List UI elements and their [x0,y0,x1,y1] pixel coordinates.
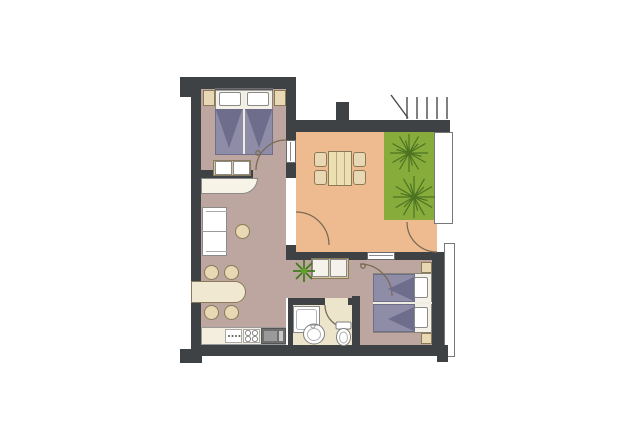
wall-bottom-right-stub [437,345,448,362]
pillow [247,92,269,106]
sofa-line [206,211,227,212]
bench-cushion [215,161,232,175]
oval-dining-table [191,281,246,303]
mattress-divider [243,89,245,154]
sofa-cushion-divider [202,231,227,232]
bedroom2-window-glass-line [369,255,393,256]
side-table [235,224,250,239]
wall-bathroom-top [288,298,325,305]
nightstand-right [274,90,286,106]
interior-window [286,140,296,163]
kitchen-sink-basin [264,331,277,341]
nightstand-left [203,90,215,106]
bedroom2-window [367,252,395,260]
wall-chimney-stub [336,102,349,122]
railing-ticks [391,95,447,119]
twin-bed-blanket [373,274,415,302]
terrace-walkway [434,132,453,224]
living-chair [314,170,327,185]
wall-bathroom-top-hinge [348,298,354,305]
wall-right [432,252,444,345]
wall-living-bottom [286,252,437,260]
nightstand-top [421,262,432,273]
pillow [414,277,428,298]
living-chair [353,170,366,185]
dining-chair [204,305,219,320]
living-chair [314,152,327,167]
mattress-divider [373,302,432,304]
interior-window-glass-line [290,142,291,161]
wall-living-top [290,120,450,132]
wall-bottom [191,345,448,356]
nightstand-bottom [421,333,432,344]
wall-bottom-left-stub [180,349,202,363]
bedroom2-door-threshold [352,260,360,296]
square-dining-table [328,151,352,186]
hall-bench-cushion [312,259,329,277]
bathroom-door-threshold [325,298,348,305]
pillow [414,307,428,328]
kitchen-faucet [279,331,283,341]
table-leaf-line [344,152,345,185]
terrace-grass [384,132,434,220]
sofa-line [206,251,227,252]
building-edge-strip [444,243,455,357]
table-leaf-line [336,152,337,185]
dining-chair [224,265,239,280]
dining-chair [204,265,219,280]
hall-bench-cushion [330,259,347,277]
hallway-floor-left [201,178,286,345]
shower-tray [296,309,317,330]
bench-cushion [233,161,250,175]
wall-divider-mid [286,163,296,178]
floor-plan [0,0,640,427]
pillow [219,92,241,106]
dining-chair [224,305,239,320]
kitchen-cabinet-knobs [225,329,242,343]
bedroom1-door-threshold [253,170,286,178]
stove [243,329,260,343]
wall-left [191,77,201,356]
twin-bed-blanket [373,304,415,332]
curved-sideboard [201,178,258,194]
living-chair [353,152,366,167]
